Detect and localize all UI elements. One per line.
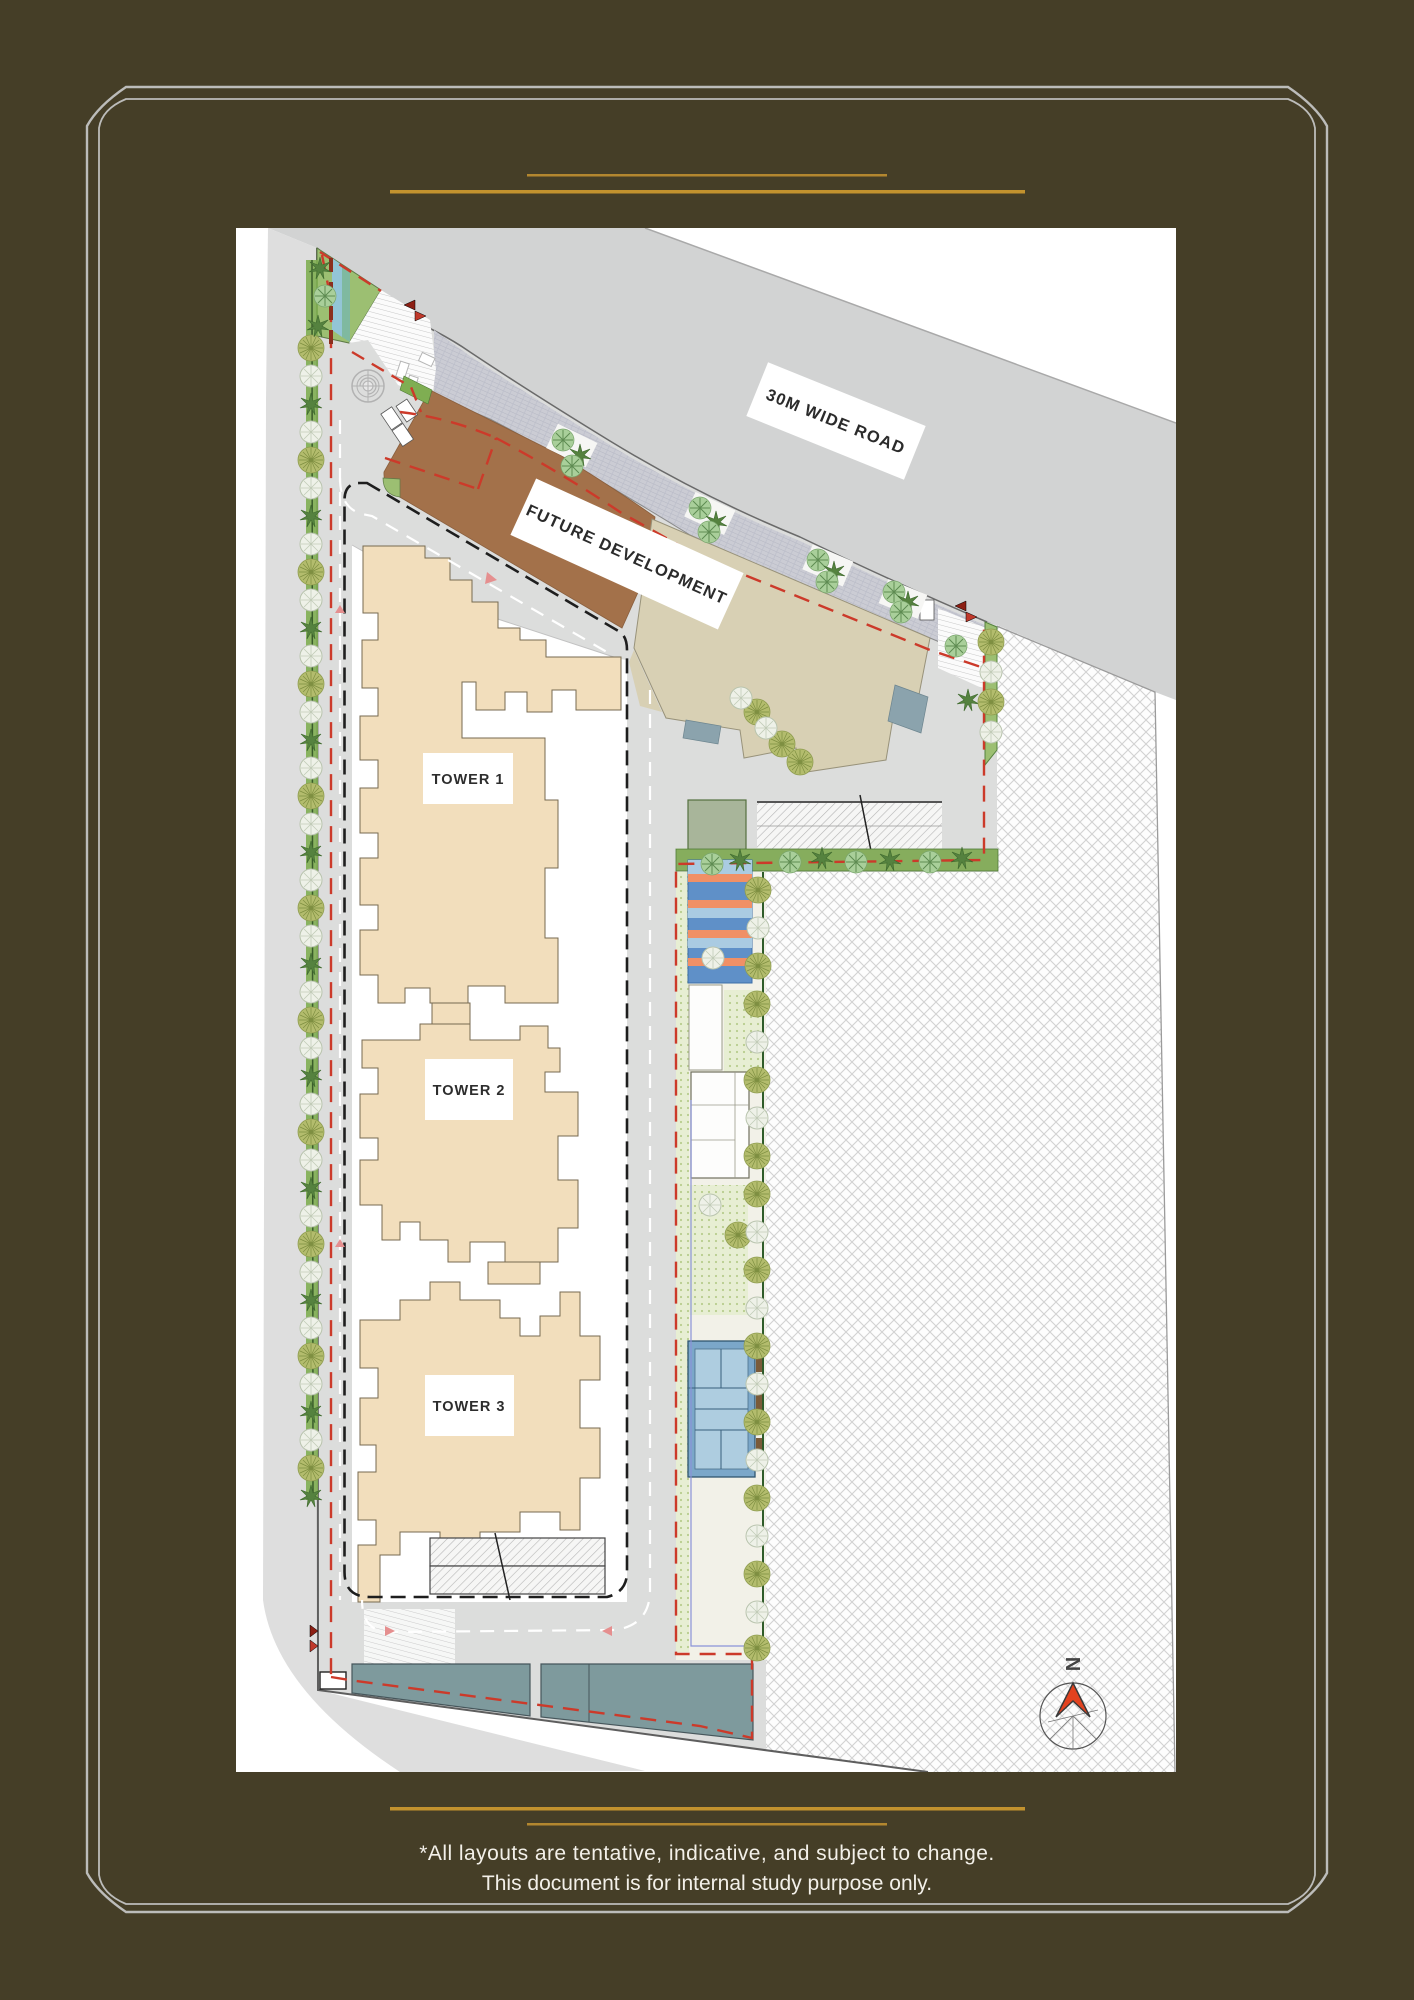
svg-text:TOWER 3: TOWER 3 bbox=[433, 1399, 506, 1415]
svg-text:*All layouts are tentative, in: *All layouts are tentative, indicative, … bbox=[419, 1842, 994, 1865]
svg-text:N: N bbox=[1063, 1657, 1085, 1671]
svg-text:TOWER 1: TOWER 1 bbox=[432, 772, 505, 788]
svg-text:TOWER 2: TOWER 2 bbox=[433, 1083, 506, 1099]
svg-text:This document is for internal: This document is for internal study purp… bbox=[482, 1872, 932, 1895]
